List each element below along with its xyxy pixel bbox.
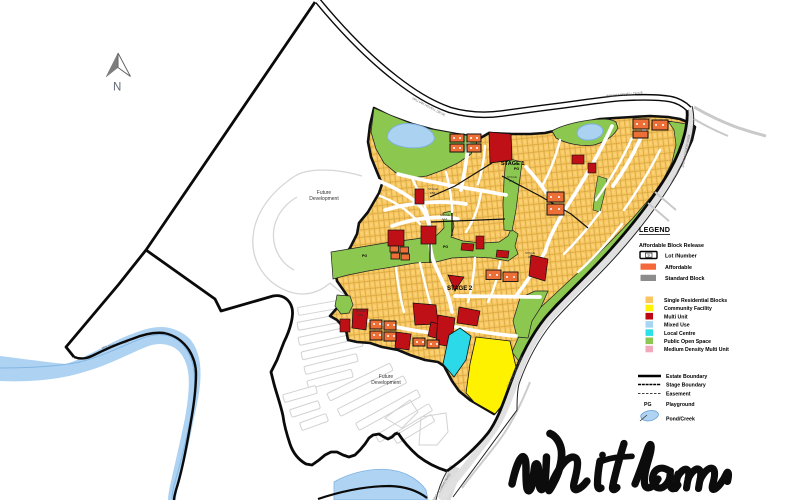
svg-text:PG: PG (362, 254, 367, 258)
svg-text:Pond/Creek: Pond/Creek (666, 417, 695, 423)
svg-text:Stage Boundary: Stage Boundary (666, 383, 706, 389)
svg-text:1A1: 1A1 (442, 217, 448, 221)
svg-text:Affordable Block Release: Affordable Block Release (639, 243, 704, 249)
svg-text:Affordable: Affordable (665, 265, 692, 271)
svg-text:Multi Unit: Multi Unit (664, 314, 688, 320)
svg-text:Local Centre: Local Centre (664, 331, 696, 337)
svg-text:Development: Development (371, 380, 401, 386)
svg-text:Mixed Use: Mixed Use (664, 323, 690, 329)
svg-text:Medium Density Multi Unit: Medium Density Multi Unit (664, 347, 729, 353)
svg-text:Public Open Space: Public Open Space (664, 339, 711, 345)
svg-text:Single Residential Blocks: Single Residential Blocks (664, 298, 727, 304)
svg-text:Easement: Easement (666, 392, 691, 398)
svg-text:N: N (113, 82, 121, 94)
svg-text:1A2: 1A2 (509, 179, 515, 183)
svg-text:Standard Block: Standard Block (665, 276, 705, 282)
svg-text:STAGE 2: STAGE 2 (447, 286, 473, 292)
svg-text:Estate Boundary: Estate Boundary (666, 374, 707, 380)
svg-text:Development: Development (309, 196, 339, 202)
svg-text:PG: PG (514, 167, 519, 171)
svg-text:PG: PG (644, 402, 652, 408)
svg-text:2B: 2B (528, 255, 532, 259)
svg-text:LEGEND: LEGEND (639, 225, 670, 234)
svg-text:9: 9 (648, 254, 650, 258)
svg-text:1B1: 1B1 (430, 191, 436, 195)
svg-text:STAGE 1: STAGE 1 (501, 161, 525, 167)
svg-text:2A1: 2A1 (358, 313, 364, 317)
svg-text:Playground: Playground (666, 402, 695, 408)
svg-text:Community Facility: Community Facility (664, 306, 712, 312)
svg-text:Lot /Number: Lot /Number (665, 253, 698, 259)
svg-text:PG: PG (443, 245, 448, 249)
